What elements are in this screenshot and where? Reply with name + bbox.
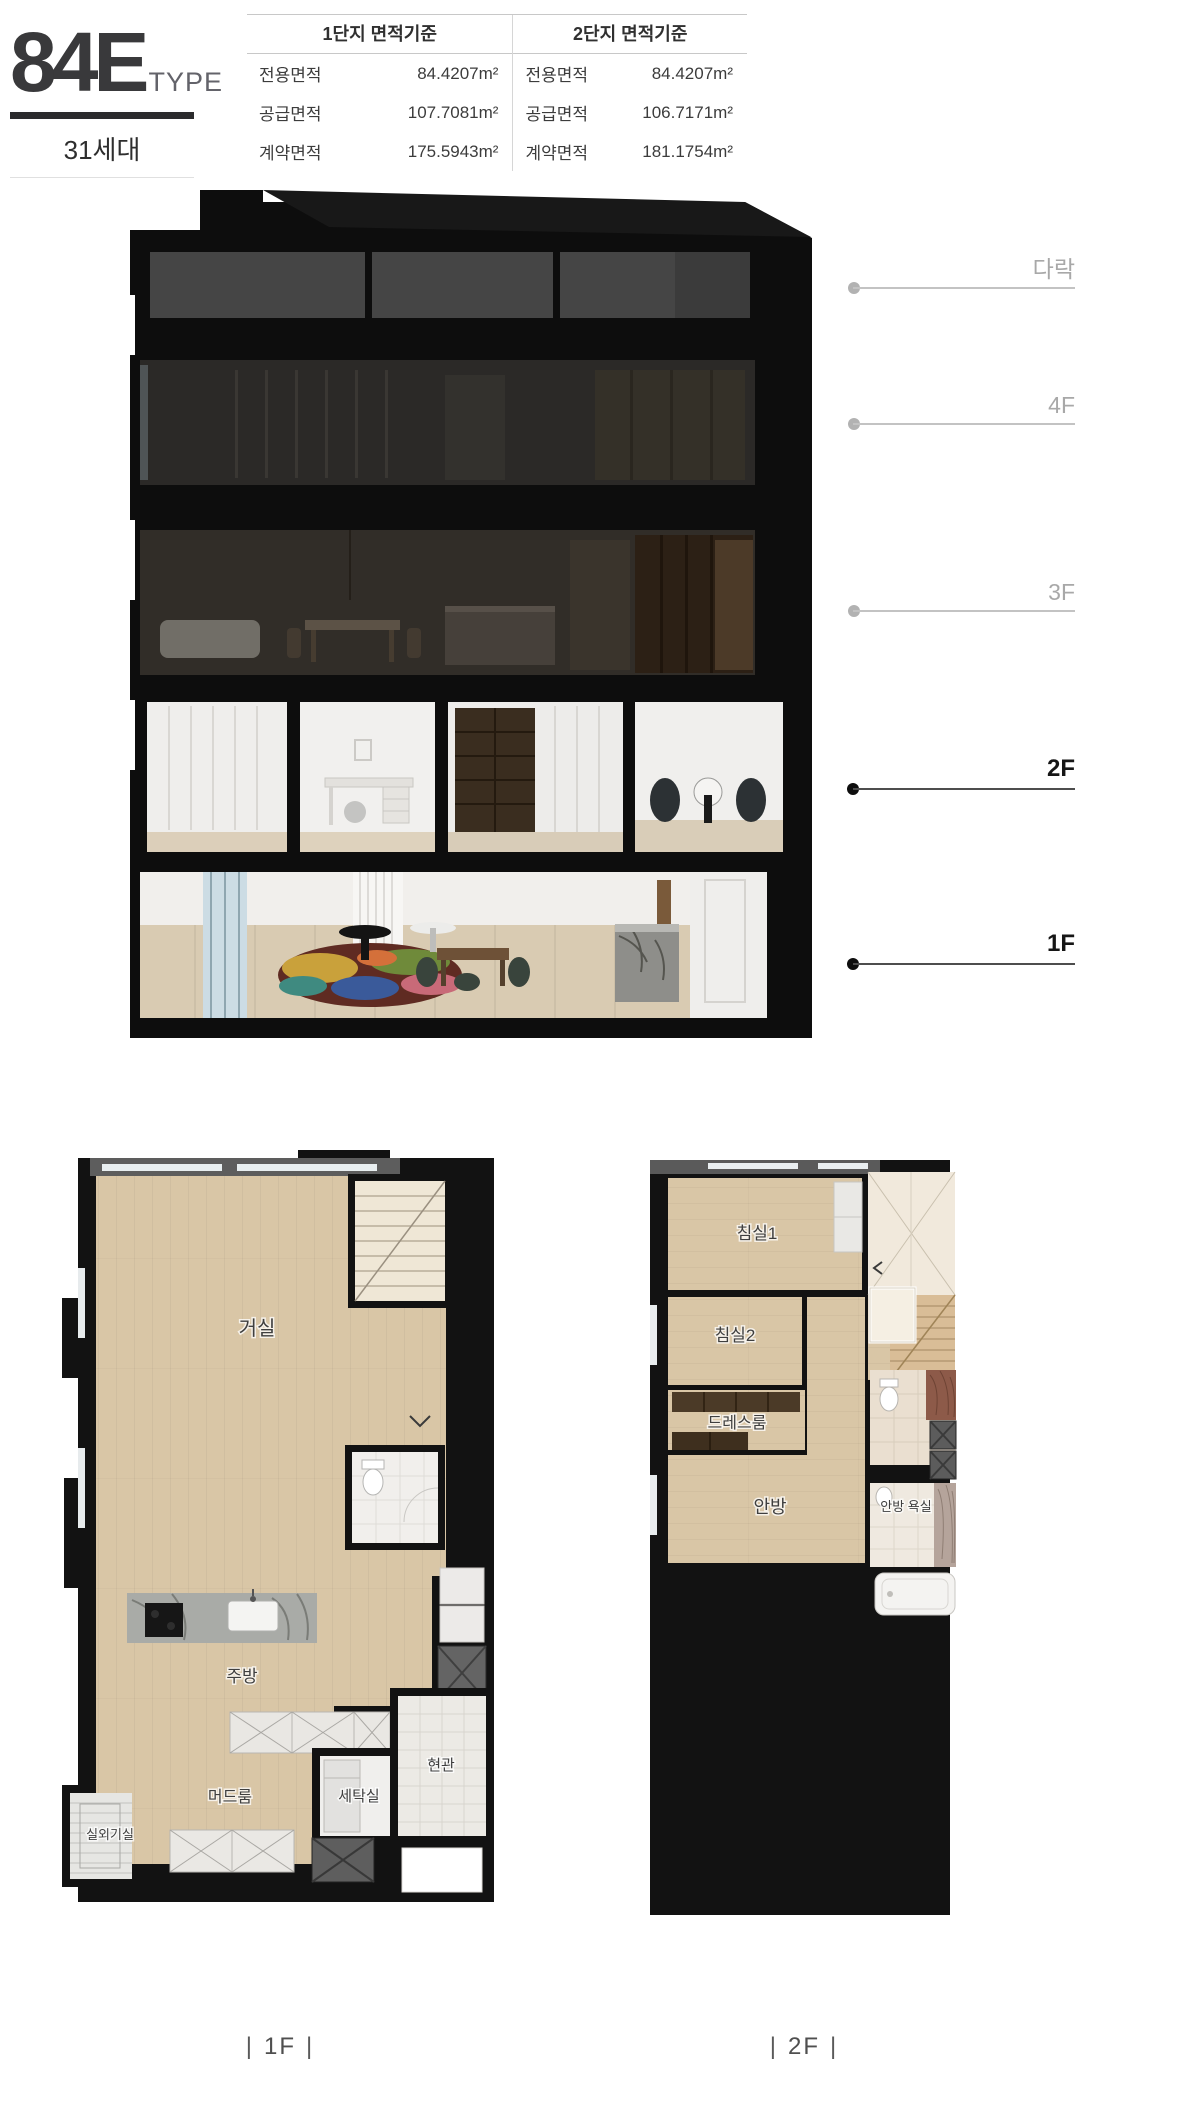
area-table-complex2-title: 2단지 면적기준: [513, 15, 747, 54]
room-label-dressroom: 드레스룸: [708, 1414, 767, 1432]
row-label: 계약면적: [247, 139, 322, 164]
caption-bar: |: [820, 2033, 848, 2060]
floor-label: 다락: [875, 254, 1075, 284]
area-table-complex1: 1단지 면적기준 전용면적 84.4207m² 공급면적 107.7081m² …: [247, 15, 512, 171]
plan-caption-1f: |1F|: [180, 2033, 380, 2061]
row-label: 공급면적: [247, 100, 322, 125]
building-cross-section-image: [115, 180, 825, 1045]
caption-bar: |: [296, 2033, 324, 2060]
caption-text: 1F: [264, 2033, 296, 2060]
caption-bar: |: [760, 2033, 788, 2060]
plan-caption-2f: |2F|: [704, 2033, 904, 2061]
divider-bar: [10, 112, 194, 119]
units-count: 31세대: [10, 119, 194, 177]
room-label-laundry: 세탁실: [338, 1788, 379, 1805]
floor-plan-2f: 침실1 침실2 드레스룸 안방 안방 욕실: [638, 1155, 970, 1920]
room-label-bedroom2: 침실2: [715, 1326, 756, 1345]
type-code: 84E: [10, 15, 144, 109]
row-label: 계약면적: [513, 139, 588, 164]
room-label-bedroom1: 침실1: [737, 1224, 778, 1243]
floor-label: 3F: [875, 577, 1075, 607]
room-label-living: 거실: [239, 1317, 276, 1340]
floor-label: 4F: [875, 390, 1075, 420]
area-table-complex2: 2단지 면적기준 전용면적 84.4207m² 공급면적 106.7171m² …: [512, 15, 747, 171]
floor-leader-line: [853, 423, 1075, 425]
floor-plan-1f: 거실 주방 머드룸 세탁실 현관 실외기실: [62, 1148, 498, 1908]
room-label-kitchen: 주방: [226, 1667, 258, 1686]
type-suffix: TYPE: [148, 67, 223, 97]
row-label: 전용면적: [513, 61, 588, 86]
floor-label: 2F: [875, 754, 1075, 784]
type-header: 84ETYPE 31세대: [10, 16, 194, 178]
units-divider: [10, 177, 194, 178]
caption-text: 2F: [788, 2033, 820, 2060]
floor-leader-line: [853, 963, 1075, 965]
room-label-entrance: 현관: [427, 1757, 455, 1774]
table-row: 전용면적 84.4207m²: [513, 54, 747, 93]
table-row: 전용면적 84.4207m²: [247, 54, 512, 93]
floor-leader-line: [853, 788, 1075, 790]
table-row: 계약면적 181.1754m²: [513, 132, 747, 171]
room-label-master-bath: 안방 욕실: [880, 1499, 931, 1514]
room-label-outdoor-unit: 실외기실: [86, 1827, 134, 1842]
row-value: 106.7171m²: [588, 103, 747, 123]
row-value: 84.4207m²: [588, 64, 747, 84]
row-value: 84.4207m²: [322, 64, 513, 84]
table-row: 공급면적 107.7081m²: [247, 93, 512, 132]
row-label: 공급면적: [513, 100, 588, 125]
floor-label: 1F: [875, 929, 1075, 959]
room-label-master: 안방: [753, 1497, 786, 1517]
type-title: 84ETYPE: [10, 16, 194, 108]
row-value: 107.7081m²: [322, 103, 513, 123]
row-label: 전용면적: [247, 61, 322, 86]
table-row: 공급면적 106.7171m²: [513, 93, 747, 132]
caption-bar: |: [236, 2033, 264, 2060]
row-value: 181.1754m²: [588, 142, 747, 162]
floor-leader-line: [853, 610, 1075, 612]
room-label-mudroom: 머드룸: [208, 1788, 252, 1806]
floor-leader-line: [853, 287, 1075, 289]
page: 84ETYPE 31세대 1단지 면적기준 전용면적 84.4207m² 공급면…: [0, 0, 1200, 2116]
table-row: 계약면적 175.5943m²: [247, 132, 512, 171]
area-table-complex1-title: 1단지 면적기준: [247, 15, 512, 54]
row-value: 175.5943m²: [322, 142, 513, 162]
area-table: 1단지 면적기준 전용면적 84.4207m² 공급면적 107.7081m² …: [247, 14, 747, 171]
